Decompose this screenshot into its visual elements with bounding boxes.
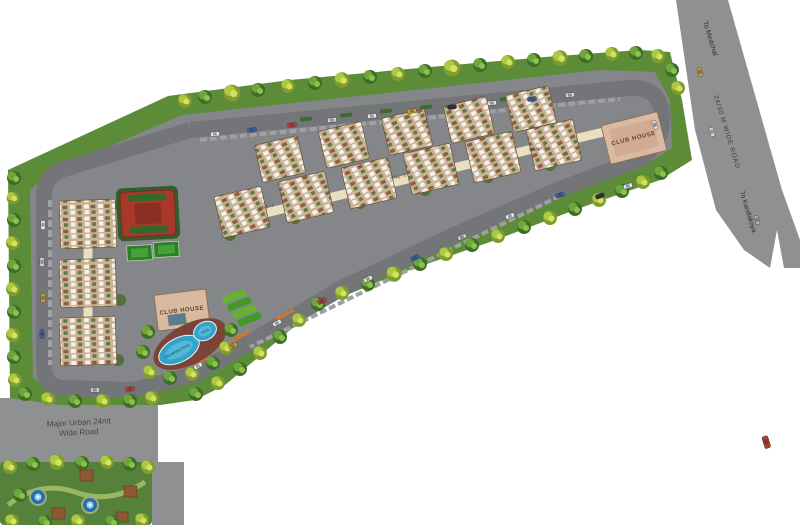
master-plan-illustration: To Medchal 24/30 M WIDE ROAD To Kandlako… (0, 0, 800, 525)
wing-tower (59, 316, 117, 366)
tennis-court (116, 185, 181, 241)
wing-tower (59, 199, 117, 249)
highway (676, 0, 800, 449)
site-master-plan: To Medchal 24/30 M WIDE ROAD To Kandlako… (0, 0, 800, 525)
bus-icon (762, 435, 771, 448)
wing-tower (59, 258, 117, 308)
